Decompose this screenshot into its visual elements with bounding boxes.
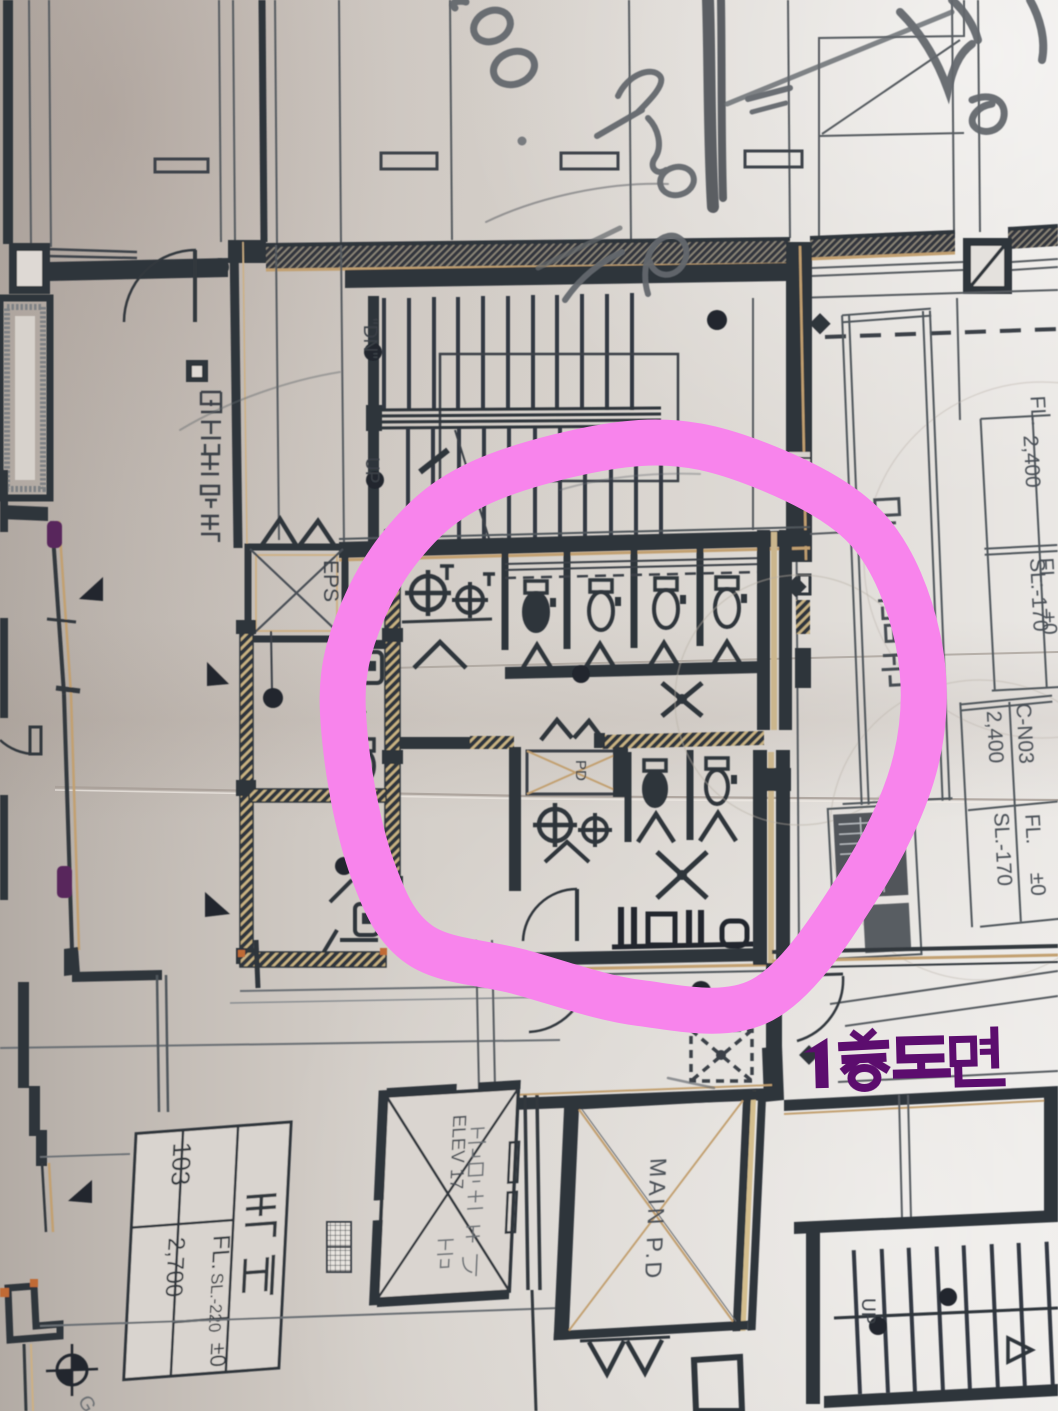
- svg-text:2,400: 2,400: [982, 710, 1008, 764]
- svg-text:UP: UP: [857, 1298, 878, 1324]
- svg-text:±0: ±0: [1037, 611, 1058, 635]
- svg-text:103: 103: [165, 1141, 197, 1187]
- svg-text:SL.-220: SL.-220: [205, 1272, 227, 1333]
- svg-text:±0: ±0: [1025, 872, 1049, 896]
- svg-text:SL.-170: SL.-170: [989, 812, 1016, 887]
- svg-text:FL.: FL.: [1034, 557, 1058, 589]
- svg-text:FL.: FL.: [206, 1234, 235, 1271]
- svg-text:FL.: FL.: [1025, 395, 1050, 427]
- svg-text:EPS: EPS: [319, 560, 342, 602]
- svg-text:FL.: FL.: [1020, 813, 1045, 845]
- svg-text:"DN": "DN": [359, 318, 380, 359]
- svg-text:C-N03: C-N03: [1011, 703, 1037, 765]
- svg-text:PD: PD: [572, 760, 589, 781]
- svg-text:±0: ±0: [205, 1342, 231, 1368]
- svg-text:ELEV 17: ELEV 17: [445, 1114, 469, 1190]
- svg-text:UP: UP: [361, 457, 382, 483]
- svg-text:2,400: 2,400: [1019, 435, 1045, 489]
- svg-text:2,700: 2,700: [160, 1236, 190, 1298]
